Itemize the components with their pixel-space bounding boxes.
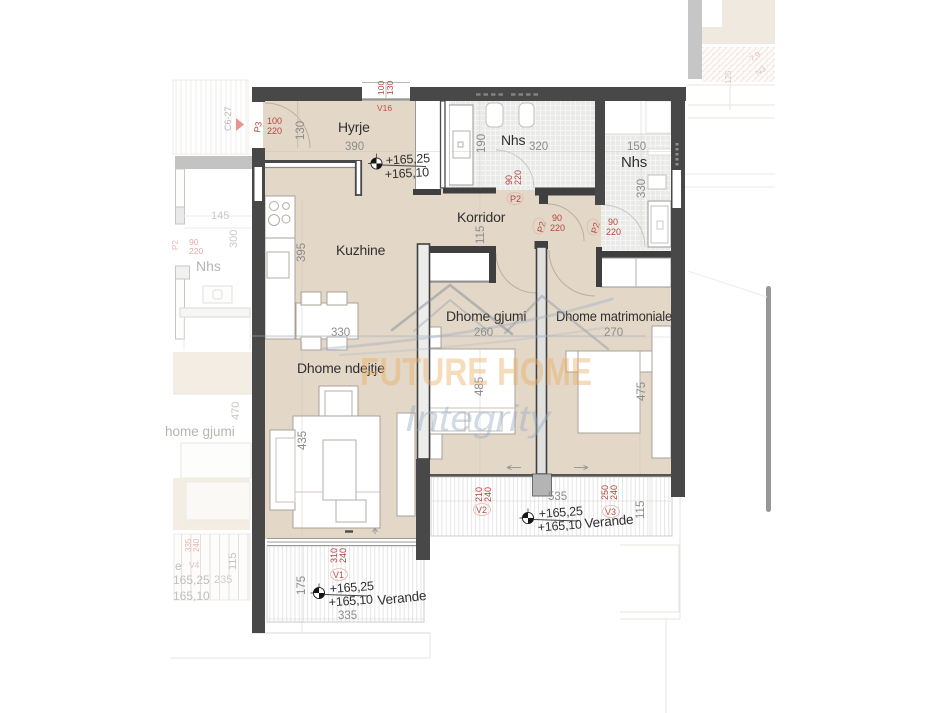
svg-text:FUTURE HOME: FUTURE HOME [360, 351, 592, 394]
svg-text:V2: V2 [476, 505, 487, 515]
svg-text:V16: V16 [377, 103, 392, 113]
svg-text:Dhome gjumi: Dhome gjumi [446, 308, 526, 324]
svg-text:220: 220 [267, 126, 282, 136]
svg-text:+165,10: +165,10 [384, 165, 429, 181]
svg-text:220: 220 [606, 227, 621, 237]
svg-text:330: 330 [636, 179, 648, 198]
svg-text:Nhs: Nhs [501, 132, 525, 148]
svg-text:320: 320 [529, 141, 548, 153]
svg-text:P2: P2 [171, 240, 180, 250]
svg-text:100: 100 [267, 116, 282, 126]
svg-text:130: 130 [295, 121, 307, 140]
svg-text:Nhs: Nhs [196, 258, 221, 274]
svg-text:220: 220 [513, 170, 523, 185]
svg-text:240: 240 [483, 487, 493, 502]
svg-text:Nhs: Nhs [621, 154, 647, 171]
svg-text:240: 240 [609, 485, 619, 500]
svg-text:115: 115 [635, 501, 647, 519]
svg-text:125: 125 [724, 70, 733, 84]
svg-text:395: 395 [296, 243, 308, 262]
svg-text:220: 220 [189, 246, 203, 256]
svg-text:235: 235 [214, 574, 232, 586]
svg-text:150: 150 [627, 141, 646, 153]
svg-text:240: 240 [192, 538, 201, 552]
svg-text:P2: P2 [510, 194, 521, 204]
svg-text:270: 270 [604, 327, 623, 339]
svg-text:330: 330 [331, 327, 350, 339]
svg-text:90: 90 [552, 213, 562, 223]
svg-text:190: 190 [476, 134, 488, 153]
svg-text:Hyrje: Hyrje [338, 119, 370, 135]
svg-text:V1: V1 [333, 570, 344, 580]
svg-text:300: 300 [228, 230, 240, 248]
svg-text:90: 90 [608, 217, 618, 227]
svg-text:e: e [175, 559, 182, 573]
svg-text:335: 335 [338, 610, 357, 622]
svg-text:Kuzhine: Kuzhine [336, 242, 386, 258]
svg-text:165,10: 165,10 [173, 589, 210, 603]
svg-text:P3: P3 [252, 121, 264, 134]
svg-text:475: 475 [636, 382, 648, 401]
svg-text:165,25: 165,25 [173, 573, 210, 587]
svg-text:435: 435 [297, 431, 309, 450]
svg-text:130: 130 [385, 81, 395, 95]
svg-text:home gjumi: home gjumi [165, 424, 235, 439]
svg-text:Integrity: Integrity [405, 398, 553, 439]
svg-text:115: 115 [227, 552, 239, 570]
svg-text:220: 220 [550, 223, 565, 233]
svg-text:470: 470 [230, 402, 242, 420]
svg-text:Korridor: Korridor [457, 209, 506, 225]
svg-text:115: 115 [475, 226, 487, 244]
svg-text:C6-27: C6-27 [223, 106, 233, 131]
svg-text:240: 240 [338, 548, 348, 563]
svg-text:390: 390 [345, 141, 364, 153]
svg-text:535: 535 [548, 491, 567, 503]
svg-text:V4: V4 [189, 560, 200, 570]
svg-text:175: 175 [296, 576, 308, 595]
svg-text:145: 145 [211, 210, 229, 222]
